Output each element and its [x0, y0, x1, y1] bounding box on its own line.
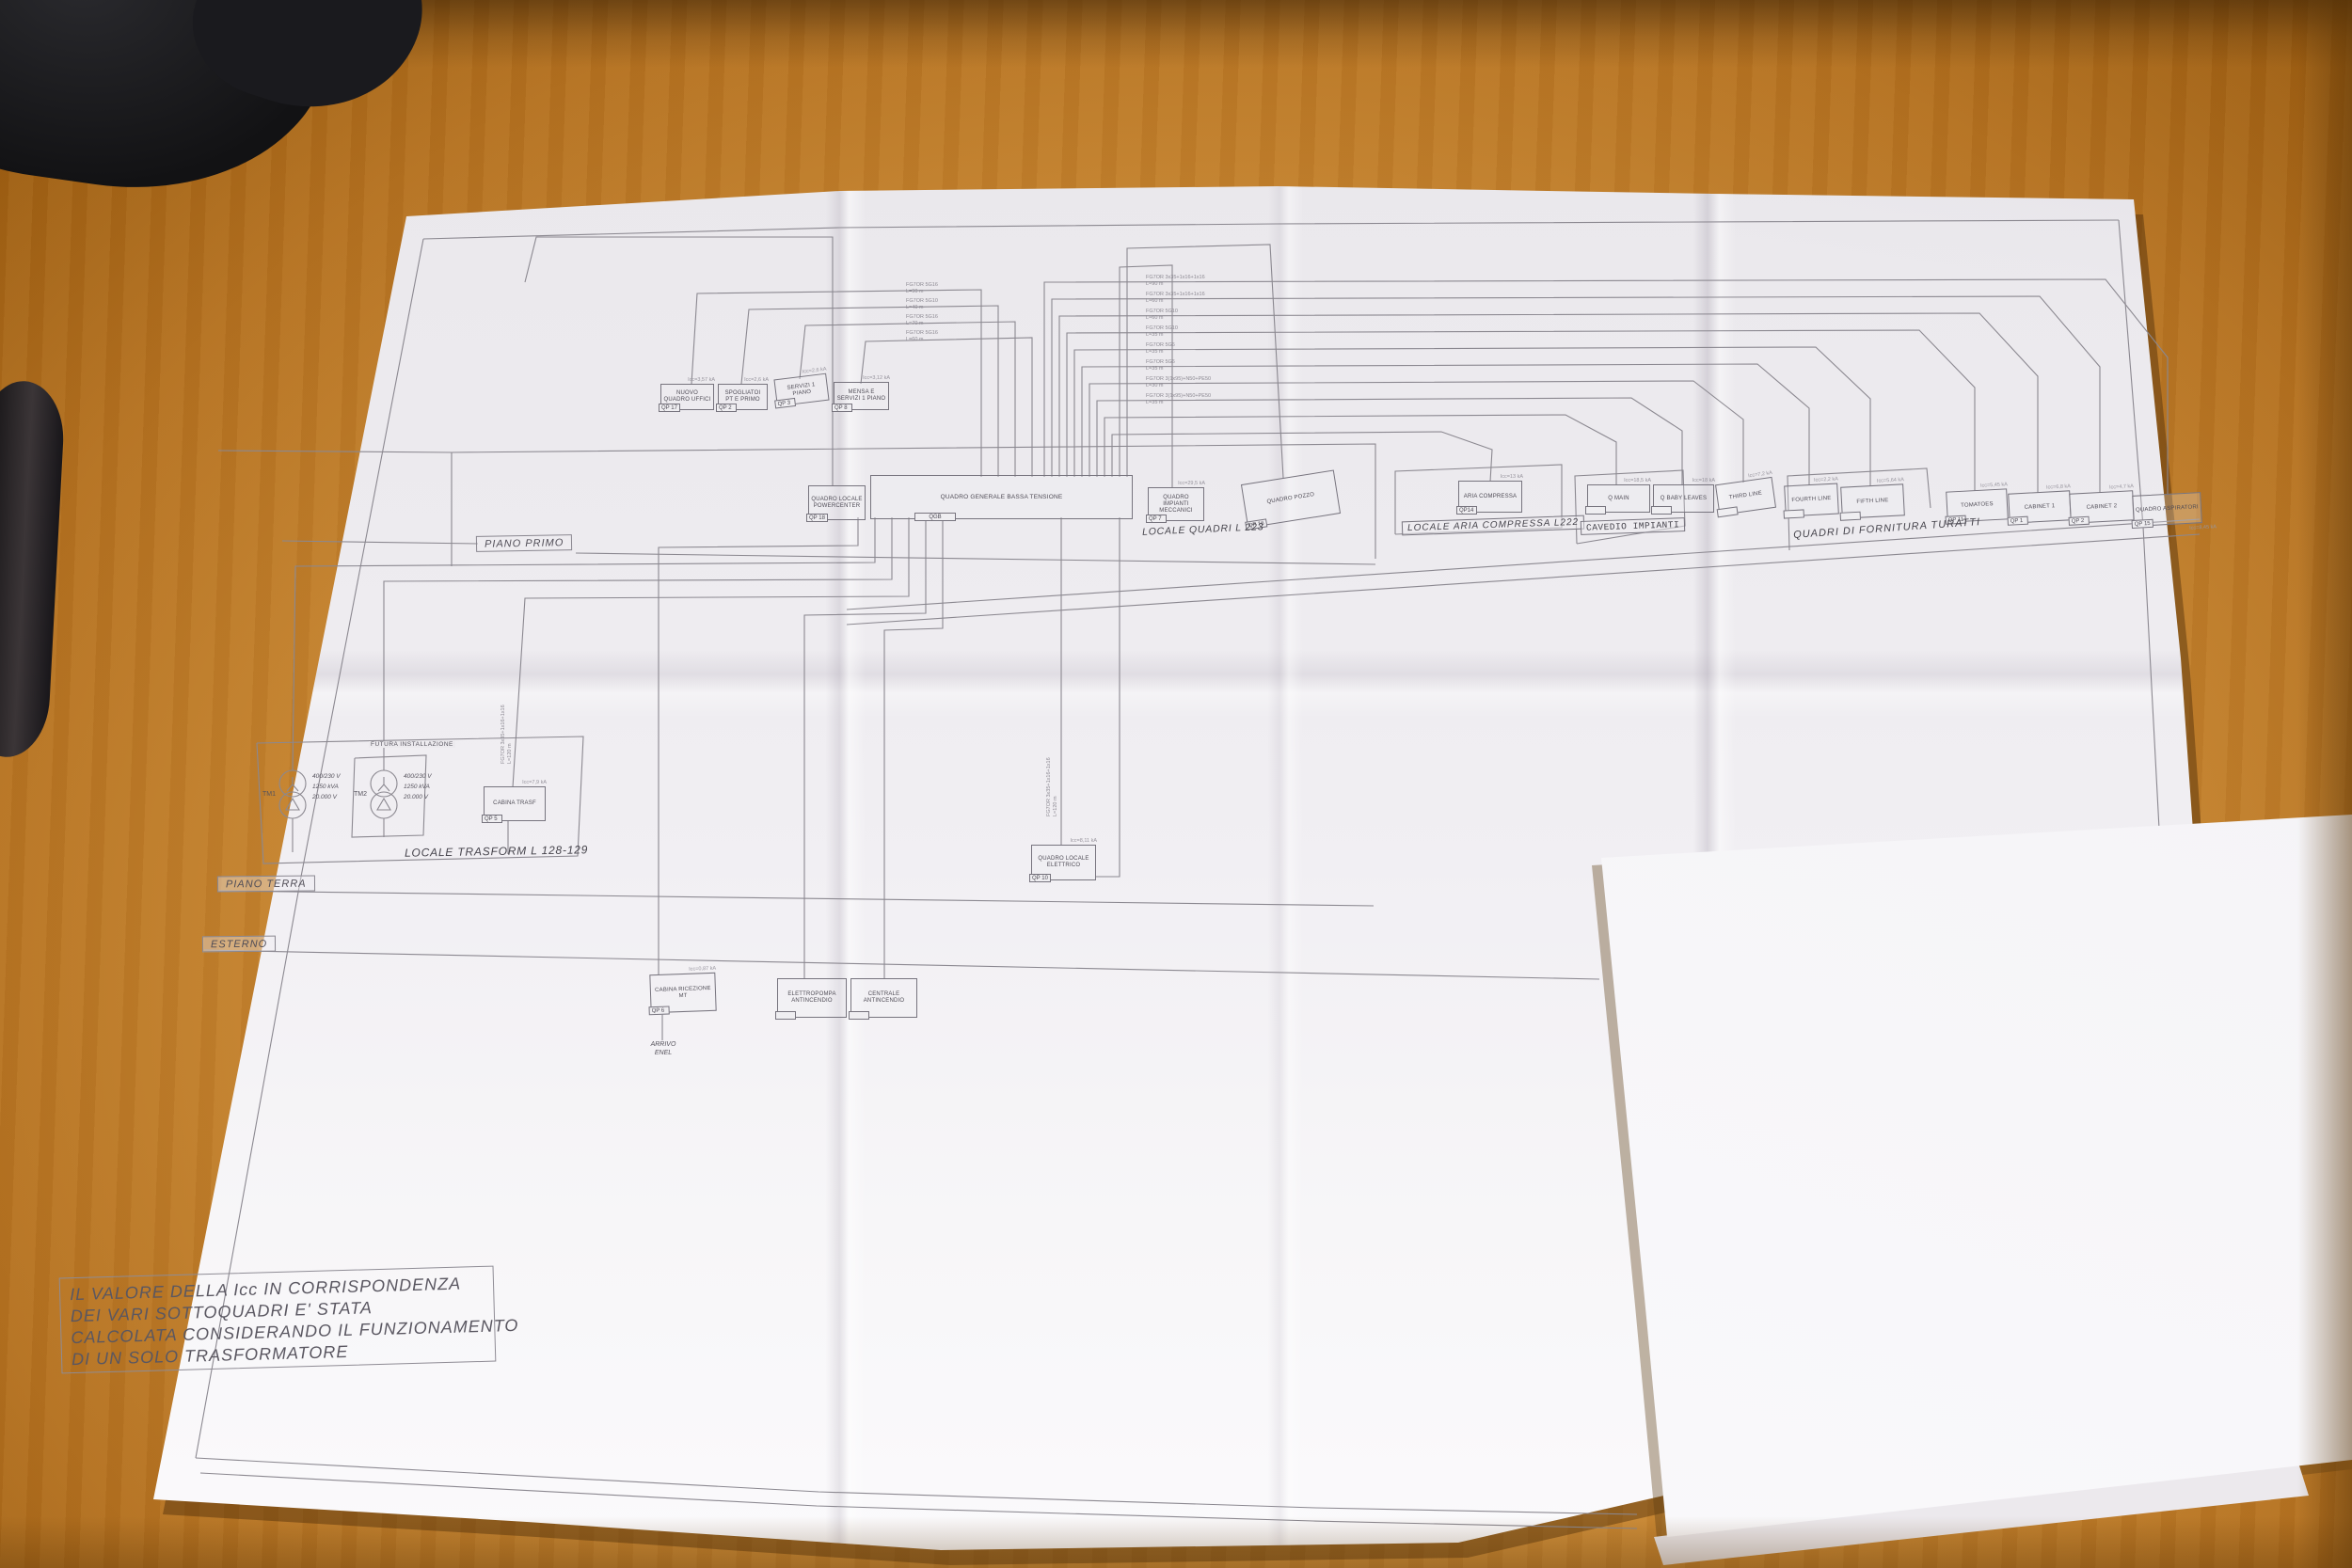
icc-label: Icc=5,45 kA	[1980, 482, 2008, 489]
panel-tag: QGB	[914, 513, 956, 521]
icc-label: Icc=2,6 kA	[744, 377, 769, 383]
cable-type: FG7OR 5G16	[906, 282, 938, 289]
cable-type: FG7OR 5G6	[1146, 359, 1175, 366]
cable-label: FG7OR 5G10 L=60 m	[1146, 309, 1178, 321]
panel-tag: QP 10	[1029, 874, 1051, 882]
voltage-hv: 20.000 V	[312, 792, 341, 802]
panel-tag: QP 15	[2132, 519, 2153, 529]
transformer-specs: 400/230 V 1250 kVA 20.000 V	[312, 771, 341, 802]
cable-length: L=30 m	[1146, 383, 1211, 389]
power: 1250 kVA	[312, 782, 341, 792]
cable-type: FG7OR 5G16	[906, 330, 938, 337]
power: 1250 kVA	[404, 782, 432, 792]
cable-type: FG7OR 3x35+1x16+1x16	[1146, 292, 1205, 298]
wire-tomatoes	[1067, 330, 1975, 491]
cable-type: FG7OR 3(1x95)+N50+PE50	[1146, 393, 1211, 400]
cable-length: L=120 m	[1053, 757, 1059, 816]
wire-tm2	[384, 517, 892, 770]
cable-label: FG7OR 5G6 L=35 m	[1146, 359, 1175, 372]
wire-baby-leaves	[1097, 398, 1682, 485]
cable-length: L=60 m	[1146, 298, 1205, 305]
floor-label-esterno: ESTERNO	[202, 936, 276, 953]
cable-label-vertical: FG7OR 3x35+1x16+1x16 L=120 m	[1046, 757, 1058, 816]
arrivo-enel-label: ARRIVO ENEL	[642, 1040, 685, 1057]
cable-type: FG7OR 5G10	[1146, 309, 1178, 315]
sep-piano-primo-r	[576, 553, 1375, 564]
panel-qp17: NUOVO QUADRO UFFICI QP 17 Icc=3,57 kA	[660, 384, 714, 410]
panel-tag: QP 18	[806, 514, 828, 522]
long-line-1	[847, 519, 2200, 610]
sep-piano-primo-l	[282, 541, 478, 544]
icc-label: Icc=5,64 kA	[1877, 477, 1904, 484]
transformer-id: TM2	[354, 791, 367, 798]
wire-qp3	[800, 322, 1015, 477]
icc-label: Icc=13 kA	[1501, 474, 1523, 480]
cable-label: FG7OR 3(1x95)+N50+PE50 L=30 m	[1146, 376, 1211, 388]
icc-label: Icc=2,2 kA	[1814, 476, 1838, 483]
icc-label: Icc=18 kA	[1692, 478, 1715, 483]
cable-type: FG7OR 5G10	[906, 298, 938, 305]
photo-scene: NUOVO QUADRO UFFICI QP 17 Icc=3,57 kA SP…	[0, 0, 2352, 1568]
panel-qp7-meccanici: QUADRO IMPIANTI MECCANICI QP 7 Icc=29,5 …	[1148, 487, 1204, 521]
desk-shade-right	[2297, 0, 2352, 1568]
cable-label: FG7OR 5G16 L=70 m	[906, 314, 938, 326]
voltage-lv: 400/230 V	[404, 771, 432, 782]
panel-tag: QP 5	[482, 815, 502, 823]
panel-tag: QP 2	[2069, 516, 2090, 526]
panel-elettropompa: ELETTROPOMPA ANTINCENDIO	[777, 978, 847, 1018]
cable-label: FG7OR 3x35+1x16+1x16 L=90 m	[1146, 275, 1205, 287]
panel-qp8: MENSA E SERVIZI 1 PIANO QP 8 Icc=3,12 kA	[834, 382, 889, 410]
panel-cabinet-2: CABINET 2 QP 2 Icc=4,7 kA	[2069, 490, 2135, 524]
panel-qp10-locale-elettrico: QUADRO LOCALE ELETTRICO QP 10 Icc=8,11 k…	[1031, 845, 1096, 880]
panel-tag: QP 7	[1146, 515, 1167, 523]
panel-tag: QP 1	[2008, 516, 2028, 526]
left-horizontal	[218, 451, 452, 452]
cable-length: L=35 m	[1146, 400, 1211, 406]
panel-tag	[1784, 509, 1804, 518]
wire-centrale	[884, 517, 943, 979]
wire-qmain	[1104, 415, 1616, 485]
panel-fourth-line: FOURTH LINE Icc=2,2 kA	[1784, 483, 1839, 517]
cable-length: L=40 m	[906, 305, 938, 311]
frame-top	[423, 220, 2119, 239]
transformer-tm1-symbol	[279, 770, 306, 818]
long-line-2	[847, 534, 2200, 625]
transformer-specs: 400/230 V 1250 kVA 20.000 V	[404, 771, 432, 802]
icc-label: Icc=6,8 kA	[2046, 483, 2071, 490]
frame-right	[2119, 220, 2160, 847]
cable-length: L=120 m	[507, 705, 514, 764]
icc-label: Icc=0,87 kA	[689, 966, 716, 973]
sep-esterno	[204, 950, 1599, 979]
desk-shade-bottom	[0, 1516, 2352, 1568]
icc-label: Icc=3,57 kA	[688, 377, 715, 383]
cable-label: FG7OR 5G16 L=90 m	[906, 282, 938, 294]
panel-centrale-antincendio: CENTRALE ANTINCENDIO	[850, 978, 917, 1018]
cable-type: FG7OR 5G6	[1146, 342, 1175, 349]
panel-qgbt: QUADRO GENERALE BASSA TENSIONE QGB	[870, 475, 1133, 519]
icc-label: Icc=7,9 kA	[522, 780, 547, 785]
cable-length: L=70 m	[906, 321, 938, 327]
cable-label: FG7OR 5G10 L=35 m	[1146, 325, 1178, 338]
panel-tag: QP 6	[648, 1006, 669, 1016]
transformer-id: TM1	[262, 791, 276, 798]
panel-tag: QP 17	[659, 404, 680, 412]
cable-length: L=60 m	[1146, 315, 1178, 322]
wire-cabina-trasf	[513, 517, 909, 787]
panel-qmain: Q MAIN Icc=18,5 kA	[1587, 484, 1650, 513]
cable-length: L=35 m	[1146, 366, 1175, 372]
wire-tm1	[293, 517, 875, 770]
panel-tag: QP14	[1456, 506, 1477, 515]
cable-type: FG7OR 3(1x95)+N50+PE50	[1146, 376, 1211, 383]
cable-label: FG7OR 5G10 L=40 m	[906, 298, 938, 310]
icc-label: Icc=8,11 kA	[1071, 838, 1097, 844]
sep-piano-terra	[219, 891, 1374, 906]
panel-qp14-aria: ARIA COMPRESSA QP14 Icc=13 kA	[1458, 481, 1522, 513]
cable-label: FG7OR 3x35+1x16+1x16 L=60 m	[1146, 292, 1205, 304]
panel-title: QUADRO GENERALE BASSA TENSIONE	[871, 476, 1132, 518]
cable-length: L=35 m	[1146, 349, 1175, 356]
panel-tag: QP 2	[716, 404, 737, 412]
cable-type: FG7OR 3x35+1x16+1x16	[1146, 275, 1205, 281]
cable-type: FG7OR 5G16	[906, 314, 938, 321]
arrivo-enel-text: ARRIVO ENEL	[651, 1041, 676, 1056]
panel-tag	[1651, 506, 1672, 515]
floor-label-piano-primo: PIANO PRIMO	[476, 534, 573, 552]
cable-label-vertical: FG7OR 3x35+1x16+1x16 L=120 m	[501, 705, 513, 764]
cable-type: FG7OR 3x35+1x16+1x16	[1046, 757, 1053, 816]
panel-qp5-cabina-trasf: CABINA TRASF QP 5 Icc=7,9 kA	[484, 786, 546, 821]
wire-elettropompa	[804, 517, 926, 979]
panel-tag: QP 8	[832, 404, 852, 412]
wire-qp18	[525, 237, 833, 485]
cable-type: FG7OR 5G10	[1146, 325, 1178, 332]
panel-fifth-line: FIFTH LINE Icc=5,64 kA	[1840, 483, 1905, 518]
cable-length: L=60 m	[906, 337, 938, 343]
panel-baby-leaves: Q BABY LEAVES Icc=18 kA	[1653, 484, 1714, 513]
panel-tag	[1585, 506, 1606, 515]
wire-aspiratori	[1044, 279, 2168, 495]
frame-bottom-1	[196, 1458, 1637, 1514]
panel-tag	[1840, 512, 1861, 521]
icc-label: Icc=18,5 kA	[1624, 478, 1651, 483]
wire-cabina-ricezione	[659, 517, 858, 974]
icc-label: Icc=3,12 kA	[863, 375, 890, 381]
wire-qp10-side	[1095, 517, 1120, 877]
voltage-hv: 20.000 V	[404, 792, 432, 802]
icc-label: Icc=29,5 kA	[1178, 481, 1205, 486]
cable-type: FG7OR 3x35+1x16+1x16	[501, 705, 507, 764]
voltage-lv: 400/230 V	[312, 771, 341, 782]
cable-label: FG7OR 5G16 L=60 m	[906, 330, 938, 342]
panel-tag	[775, 1011, 796, 1020]
panel-qp18-powercenter: QUADRO LOCALE POWERCENTER QP 18	[808, 485, 866, 520]
icc-note-box: IL VALORE DELLA Icc IN CORRISPONDENZA DE…	[59, 1266, 497, 1374]
cable-length: L=90 m	[906, 289, 938, 295]
cable-label: FG7OR 3(1x95)+N50+PE50 L=35 m	[1146, 393, 1211, 405]
panel-qp6-cabina-ricezione: CABINA RICEZIONE MT QP 6 Icc=0,87 kA	[649, 973, 716, 1013]
panel-qp15-aspiratori: QUADRO ASPIRATORI QP 15 Icc=8,45 kA	[2132, 492, 2202, 527]
panel-qp2: SPOGLIATOI PT E PRIMO QP 2 Icc=2,6 kA	[718, 384, 768, 410]
transformer-tm2-symbol	[371, 770, 397, 818]
cable-label: FG7OR 5G6 L=35 m	[1146, 342, 1175, 355]
futura-installazione-label: FUTURA INSTALLAZIONE	[369, 741, 455, 748]
cable-length: L=35 m	[1146, 332, 1178, 339]
panel-tag	[849, 1011, 869, 1020]
icc-label: Icc=4,7 kA	[2109, 483, 2134, 490]
cable-length: L=90 m	[1146, 281, 1205, 288]
panel-cabinet-1: CABINET 1 QP 1 Icc=6,8 kA	[2008, 490, 2072, 523]
floor-label-piano-terra: PIANO TERRA	[217, 876, 315, 893]
